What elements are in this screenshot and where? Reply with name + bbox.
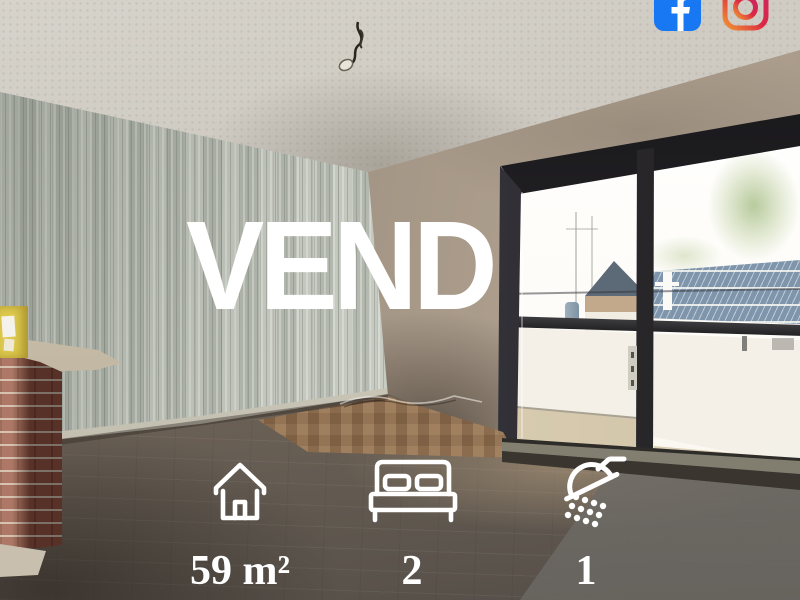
distant-structure [566, 228, 598, 230]
facebook-icon[interactable] [654, 0, 701, 31]
glass-reflection [521, 192, 523, 438]
instagram-icon[interactable] [722, 0, 769, 31]
railing-post [742, 336, 747, 351]
shower-head-icon [558, 452, 630, 528]
status-overlay-text: VEND [186, 203, 493, 329]
paper [3, 339, 14, 352]
ceiling-wire-and-bulb-icon [333, 14, 377, 76]
floor-cable [336, 388, 486, 412]
wall-vent [772, 338, 794, 350]
door-handle[interactable] [628, 346, 637, 390]
area-value: 59 m² [140, 550, 340, 592]
bedrooms-value: 2 [362, 550, 462, 592]
paper [1, 316, 15, 338]
double-bed-icon [367, 456, 459, 524]
real-estate-listing-photo: VEND 59 m² 2 [0, 0, 800, 600]
yellow-box [0, 306, 28, 358]
house-outline-icon [210, 458, 270, 524]
antenna [655, 282, 679, 286]
bathrooms-value: 1 [536, 550, 636, 592]
